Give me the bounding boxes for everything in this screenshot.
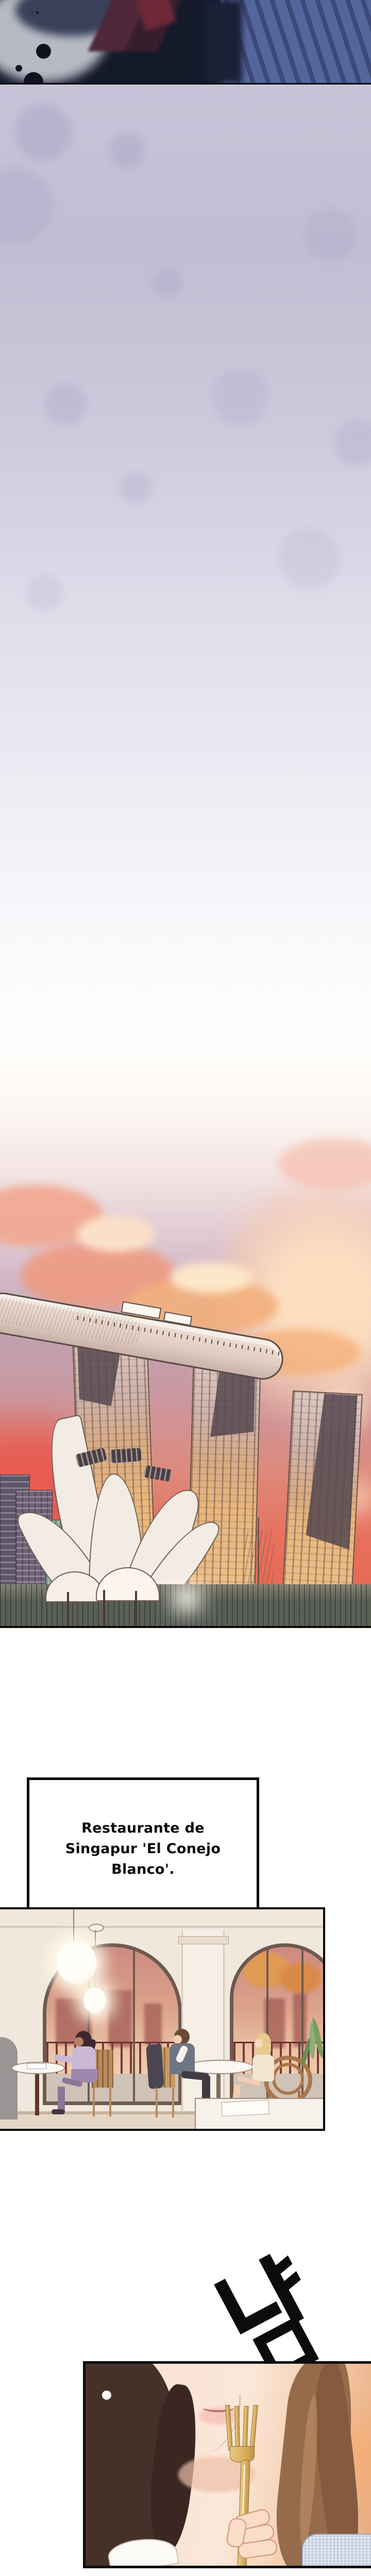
pearl-earring <box>102 2391 111 2400</box>
sky-lavender <box>0 84 371 1108</box>
diner-a-chair-legs <box>109 2088 111 2116</box>
table-pedestal <box>35 2068 39 2115</box>
diner-a-shoe <box>52 2109 65 2114</box>
pendant-lamp <box>83 1988 106 2013</box>
diner-b-chair-legs <box>172 2088 174 2117</box>
bokeh-circle <box>278 528 340 589</box>
canopy-pole <box>103 1590 105 1626</box>
street-glow <box>166 1578 207 1619</box>
view-building <box>108 1990 132 2047</box>
caption-line: Restaurante de <box>81 1818 205 1839</box>
lamp-cord <box>73 1909 74 1943</box>
pendant-lamp <box>57 1941 97 1985</box>
ink-dot <box>15 65 22 72</box>
crown-moulding <box>0 1926 323 1928</box>
view-building <box>144 2004 162 2045</box>
webtoon-page: Restaurante de Singapur 'El Conejo Blanc… <box>0 0 371 2576</box>
lotus-window <box>143 1465 172 1482</box>
fabric-shadow <box>206 0 242 83</box>
caption-line: Singapur 'El Conejo <box>65 1839 221 1859</box>
maroon-streak <box>72 0 196 52</box>
tweed-shoulder <box>302 2534 371 2568</box>
ink-dot <box>36 11 39 14</box>
panel-restaurant <box>0 1907 325 2131</box>
bokeh-circle <box>14 103 72 161</box>
blue-fabric <box>221 0 371 83</box>
menu-paper <box>27 2063 46 2069</box>
diner-b-jacket-draped <box>146 2044 164 2089</box>
diner-a-legs <box>58 2087 65 2111</box>
panel-border <box>0 1626 371 1628</box>
lamp-mount <box>89 1924 104 1932</box>
diner-c-face <box>255 2039 263 2047</box>
bokeh-circle <box>153 268 182 298</box>
view-building <box>293 1993 307 2047</box>
paper-on-block <box>221 2100 269 2117</box>
bokeh-circle <box>44 383 87 426</box>
canopy-pole <box>135 1591 137 1626</box>
diner-c-torso <box>252 2055 274 2081</box>
bokeh-circle <box>108 132 145 169</box>
bokeh-circle <box>26 574 63 611</box>
fork-tine <box>242 2406 248 2451</box>
pillar-capital <box>178 1936 229 1944</box>
fork-tine <box>249 2405 258 2450</box>
diner-c-chairback <box>272 2063 304 2095</box>
gray-drape <box>0 2037 18 2120</box>
caption-line: Blanco'. <box>111 1859 175 1880</box>
panel-closeup-eating <box>83 2361 371 2568</box>
bokeh-circle <box>334 419 371 467</box>
ink-dot <box>36 44 51 59</box>
diner-b-face <box>173 2035 182 2044</box>
window-mullion <box>133 1947 135 2102</box>
diner-a-chair-legs <box>93 2088 95 2116</box>
fork-tine <box>234 2406 240 2451</box>
diner-b-chair-legs <box>156 2088 158 2117</box>
bokeh-circle <box>0 167 54 244</box>
bokeh-circle <box>120 472 151 504</box>
lotus-window <box>110 1448 142 1463</box>
caption-box: Restaurante de Singapur 'El Conejo Blanc… <box>27 1777 259 1921</box>
bokeh-circle <box>211 368 269 426</box>
view-foliage <box>280 1962 321 1993</box>
canopy-pole <box>67 1592 69 1626</box>
cloud-cream <box>77 1216 155 1252</box>
diner-a-face <box>74 2037 83 2046</box>
panel-dark-blur <box>0 0 371 84</box>
scene-city-sunset <box>0 1108 371 1628</box>
bokeh-circle <box>304 208 358 262</box>
cloud-cream <box>170 1262 252 1293</box>
